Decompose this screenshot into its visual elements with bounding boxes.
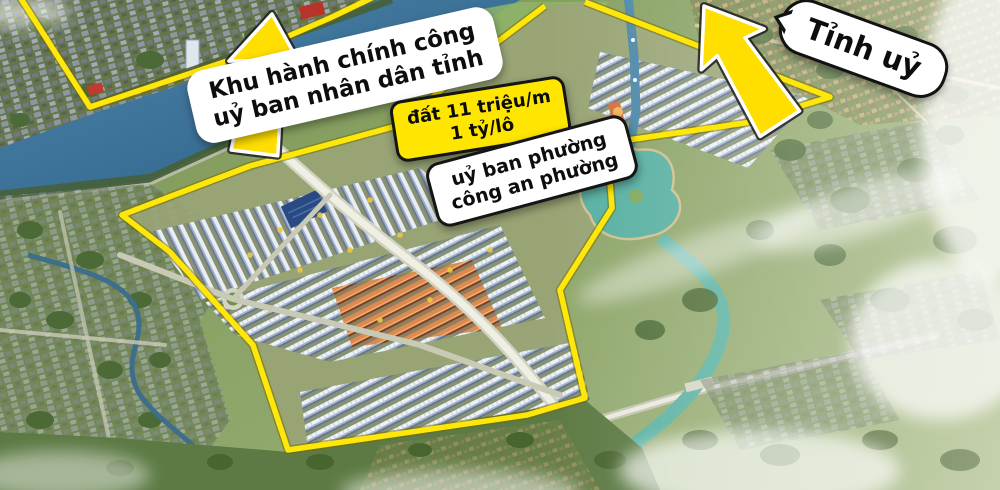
masterplan-screenshot: Khu hành chính công uỷ ban nhân dân tỉnh… <box>0 0 1000 490</box>
